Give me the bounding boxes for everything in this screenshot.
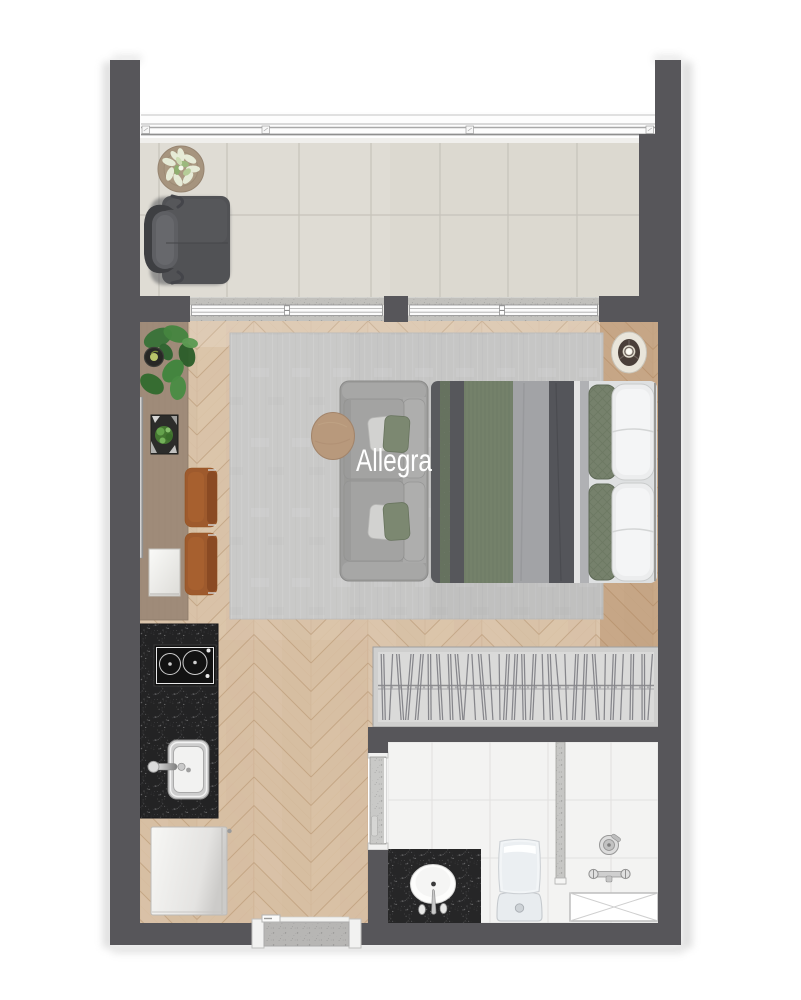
- svg-text:Allegra: Allegra: [356, 442, 432, 478]
